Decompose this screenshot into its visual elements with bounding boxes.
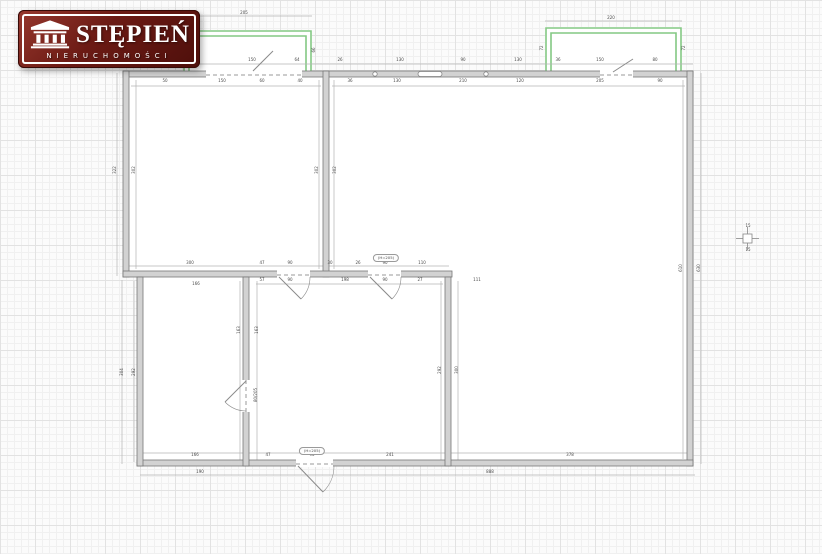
portico-columns-icon — [28, 19, 72, 49]
dimension-label: 241 — [386, 453, 394, 457]
dimension-label: 47 — [259, 261, 264, 265]
dimension-label: 72 — [682, 45, 686, 50]
dimension-label: 90 — [287, 261, 292, 265]
dimension-label: 304 — [120, 368, 124, 376]
dimension-label: 300 — [186, 261, 194, 265]
logo-subtitle: NIERUCHOMOŚCI — [46, 52, 171, 60]
dimension-label: 205 — [240, 11, 248, 15]
dimension-label: 80 — [652, 58, 657, 62]
dimension-label: 15 — [745, 224, 750, 228]
logo-frame: STĘPIEŃ NIERUCHOMOŚCI — [22, 14, 196, 64]
dimension-label: 36 — [555, 58, 560, 62]
dimension-label: 610 — [679, 264, 683, 272]
dimension-label: 66 — [312, 47, 316, 52]
floorplan-page: 2056666220727246301506426130901303615080… — [0, 0, 822, 554]
dimension-label: 322 — [113, 166, 117, 174]
dimension-label: 90 — [657, 79, 662, 83]
dimension-label: 163 — [255, 326, 259, 334]
wall-left — [123, 71, 129, 277]
dimension-label: 130 — [514, 58, 522, 62]
balcony-right — [545, 27, 682, 71]
dimension-label: 36 — [347, 79, 352, 83]
door-height-annotation: (H=205) — [373, 254, 399, 262]
dimension-label: 220 — [607, 16, 615, 20]
dimension-label: 110 — [418, 261, 426, 265]
entrance-door-leaf — [298, 466, 323, 492]
dimension-label: 302 — [315, 166, 319, 174]
wall-divider-vertical — [323, 71, 329, 277]
entrance-door-arc — [323, 466, 334, 492]
dimension-label: 150 — [596, 58, 604, 62]
dimension-label: 30 — [327, 261, 332, 265]
wall-rooms-cd — [243, 277, 249, 466]
dimension-label: 166 — [191, 453, 199, 457]
dimension-label: 302 — [333, 166, 337, 174]
dimension-label: 60 — [259, 79, 264, 83]
door-height-annotation: (H=205) — [299, 447, 325, 455]
dimension-label: 205 — [596, 79, 604, 83]
wall-bottom — [137, 460, 693, 466]
dimension-label: 190 — [196, 470, 204, 474]
door-size-label: 80/205 — [254, 388, 258, 402]
dimension-label: 90 — [382, 278, 387, 282]
balcony-left — [183, 30, 312, 71]
dimension-label: 302 — [132, 166, 136, 174]
dimension-label: 47 — [265, 453, 270, 457]
apartment-footprint — [123, 71, 693, 466]
dimension-label: 198 — [341, 278, 349, 282]
dimension-label: 378 — [566, 453, 574, 457]
dimension-label: 130 — [396, 58, 404, 62]
dimension-label: 166 — [192, 282, 200, 286]
floorplan-drawing — [0, 0, 822, 554]
dimension-label: 130 — [393, 79, 401, 83]
dimension-label: 72 — [540, 45, 544, 50]
dimension-label: 40 — [297, 79, 302, 83]
dimension-label: 64 — [294, 58, 299, 62]
dimension-label: 163 — [237, 326, 241, 334]
wall-right — [687, 71, 693, 466]
dimension-label: 50 — [162, 79, 167, 83]
dimension-label: 26 — [355, 261, 360, 265]
dimension-label: 120 — [516, 79, 524, 83]
dimension-label: 150 — [218, 79, 226, 83]
dimension-label: 111 — [473, 278, 481, 282]
wall-bottomleft-left — [137, 277, 143, 466]
dimension-label: 292 — [438, 366, 442, 374]
dimension-label: 150 — [248, 58, 256, 62]
dimension-label: 27 — [417, 278, 422, 282]
dimension-label: 292 — [132, 368, 136, 376]
dimension-label: 26 — [337, 58, 342, 62]
dimension-label: 15 — [745, 248, 750, 252]
dimension-label: 888 — [486, 470, 494, 474]
dimension-label: 300 — [455, 366, 459, 374]
dimension-label: 57 — [259, 278, 264, 282]
dimension-label: 90 — [287, 278, 292, 282]
dimension-label: 630 — [697, 264, 701, 272]
dimension-label: 210 — [459, 79, 467, 83]
agency-logo: STĘPIEŃ NIERUCHOMOŚCI — [18, 10, 200, 68]
wall-room-c-right — [445, 277, 451, 466]
dimension-label: 90 — [460, 58, 465, 62]
logo-title: STĘPIEŃ — [76, 22, 190, 47]
